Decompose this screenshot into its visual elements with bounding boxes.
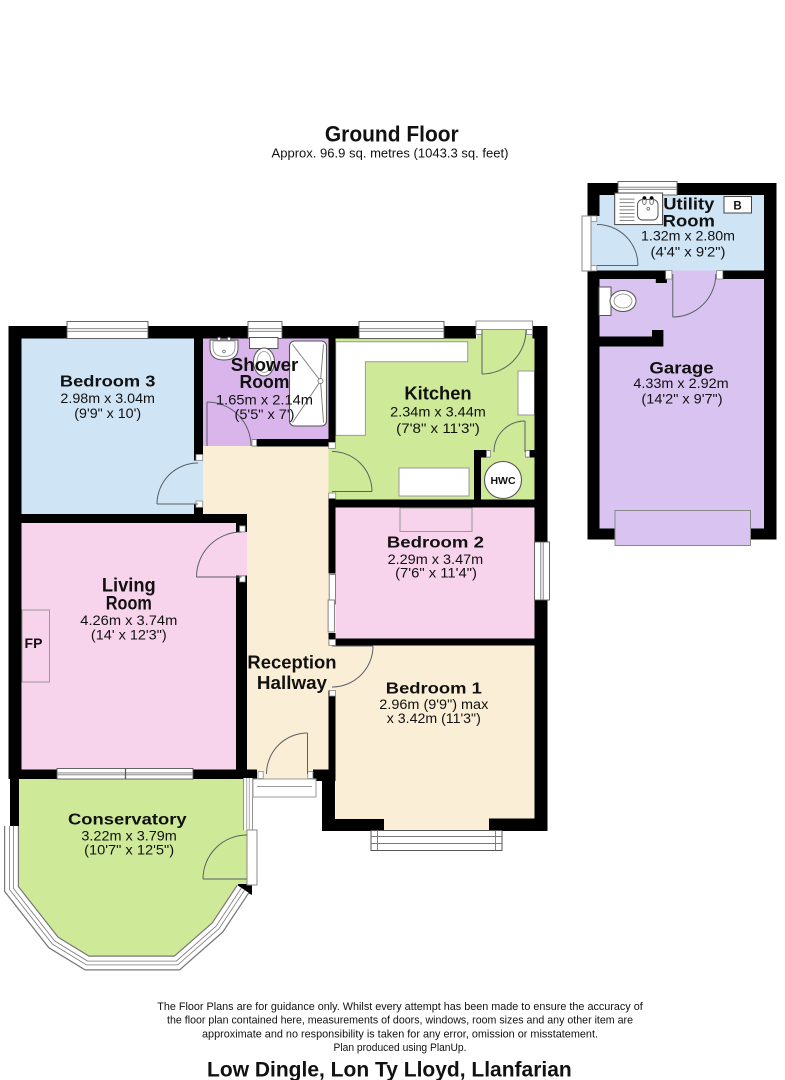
- svg-text:(10'7" x 12'5"): (10'7" x 12'5"): [84, 842, 174, 858]
- svg-text:Bedroom 3: Bedroom 3: [60, 374, 156, 391]
- svg-text:(14' x 12'3"): (14' x 12'3"): [91, 627, 167, 643]
- svg-text:Kitchen: Kitchen: [404, 384, 471, 404]
- svg-text:Hallway: Hallway: [257, 673, 327, 693]
- svg-text:Bedroom 1: Bedroom 1: [386, 681, 482, 698]
- svg-text:(7'8" x 11'3"): (7'8" x 11'3"): [396, 420, 480, 436]
- svg-text:2.98m x 3.04m: 2.98m x 3.04m: [60, 390, 155, 406]
- svg-text:FP: FP: [25, 635, 43, 651]
- svg-text:x 3.42m (11'3"): x 3.42m (11'3"): [387, 711, 481, 726]
- svg-text:1.32m x 2.80m: 1.32m x 2.80m: [641, 227, 735, 243]
- svg-text:(14'2" x 9'7"): (14'2" x 9'7"): [641, 391, 722, 407]
- svg-text:(7'6" x 11'4"): (7'6" x 11'4"): [395, 565, 477, 581]
- svg-text:Low Dingle, Lon Ty Lloyd, Llan: Low Dingle, Lon Ty Lloyd, Llanfarian: [207, 1058, 572, 1080]
- svg-text:4.33m x 2.92m: 4.33m x 2.92m: [633, 375, 728, 391]
- svg-text:the floor plan contained here,: the floor plan contained here, measureme…: [167, 1015, 633, 1027]
- svg-text:B: B: [733, 201, 741, 213]
- svg-text:Ground Floor: Ground Floor: [325, 121, 459, 146]
- svg-text:The Floor Plans are for guidan: The Floor Plans are for guidance only. W…: [157, 1001, 643, 1013]
- svg-text:(5'5" x 7'): (5'5" x 7'): [235, 406, 295, 422]
- svg-text:2.96m (9'9") max: 2.96m (9'9") max: [379, 697, 488, 712]
- svg-text:Conservatory: Conservatory: [68, 812, 187, 829]
- svg-text:Reception: Reception: [247, 653, 336, 673]
- svg-text:(9'9" x 10'): (9'9" x 10'): [74, 405, 141, 421]
- svg-text:2.34m x 3.44m: 2.34m x 3.44m: [390, 404, 486, 420]
- svg-text:(4'4" x 9'2"): (4'4" x 9'2"): [651, 243, 726, 259]
- svg-text:approximate and no responsibil: approximate and no responsibility is tak…: [202, 1028, 598, 1040]
- svg-text:Approx. 96.9 sq. metres (1043.: Approx. 96.9 sq. metres (1043.3 sq. feet…: [272, 147, 509, 161]
- svg-text:Bedroom 2: Bedroom 2: [387, 535, 484, 552]
- svg-text:Plan produced using PlanUp.: Plan produced using PlanUp.: [334, 1042, 467, 1054]
- svg-text:HWC: HWC: [490, 475, 515, 487]
- svg-text:Room: Room: [240, 372, 290, 392]
